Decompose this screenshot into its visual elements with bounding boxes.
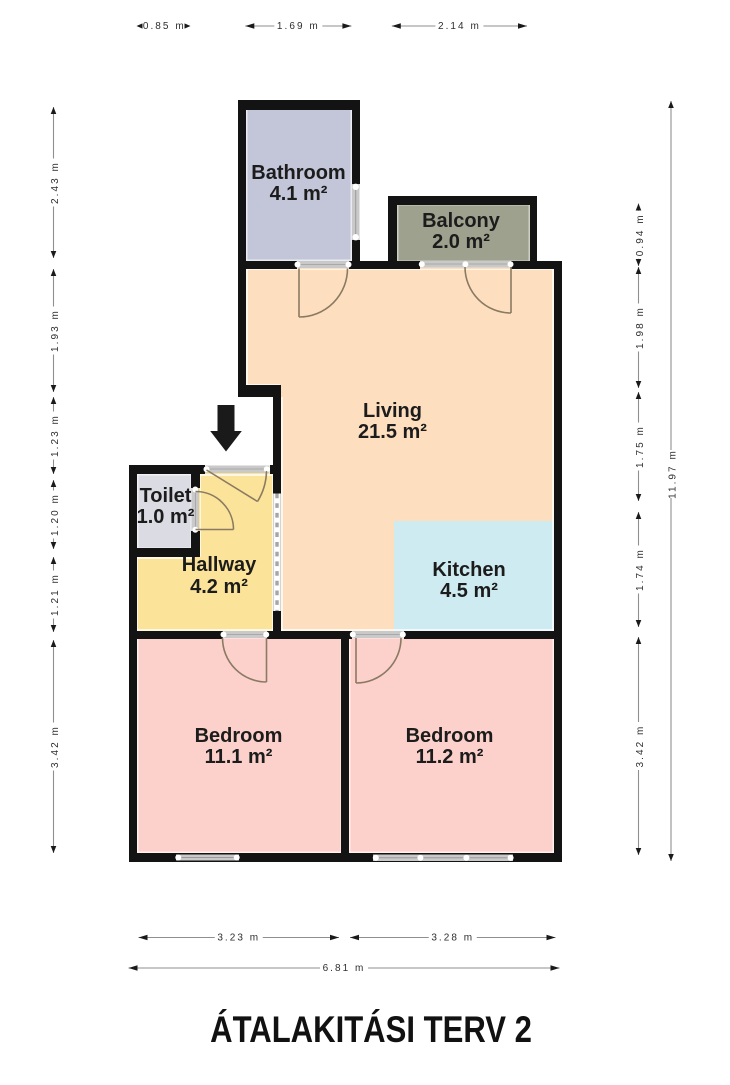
svg-text:1.98 m: 1.98 m bbox=[635, 306, 646, 349]
svg-text:1.93 m: 1.93 m bbox=[50, 309, 61, 352]
svg-text:1.20 m: 1.20 m bbox=[50, 493, 61, 536]
svg-text:0.94 m: 0.94 m bbox=[635, 213, 646, 256]
svg-text:3.23 m: 3.23 m bbox=[217, 933, 260, 944]
svg-text:1.23 m: 1.23 m bbox=[50, 414, 61, 457]
svg-text:1.21 m: 1.21 m bbox=[50, 573, 61, 616]
svg-text:2.43 m: 2.43 m bbox=[50, 161, 61, 204]
svg-text:3.42 m: 3.42 m bbox=[635, 725, 646, 768]
svg-text:1.69 m: 1.69 m bbox=[277, 21, 320, 32]
svg-text:3.42 m: 3.42 m bbox=[50, 725, 61, 768]
svg-text:2.14 m: 2.14 m bbox=[438, 21, 481, 32]
svg-text:6.81 m: 6.81 m bbox=[323, 963, 366, 974]
svg-text:3.28 m: 3.28 m bbox=[431, 933, 474, 944]
svg-text:1.74 m: 1.74 m bbox=[635, 548, 646, 591]
svg-text:11.97 m: 11.97 m bbox=[667, 449, 678, 499]
svg-text:1.75 m: 1.75 m bbox=[635, 425, 646, 468]
svg-text:0.85 m: 0.85 m bbox=[143, 21, 186, 32]
